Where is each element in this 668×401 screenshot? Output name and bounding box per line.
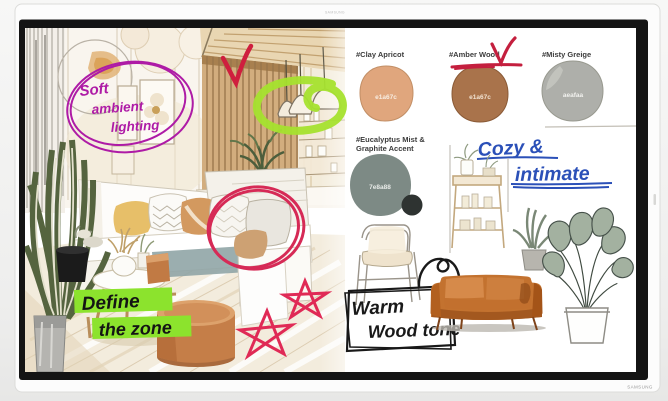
svg-text:SAMSUNG: SAMSUNG: [627, 385, 653, 390]
svg-text:Soft: Soft: [79, 80, 111, 100]
svg-text:#Clay Apricot: #Clay Apricot: [356, 50, 405, 59]
svg-text:aeafaa: aeafaa: [563, 92, 584, 99]
svg-text:Graphite Accent: Graphite Accent: [356, 144, 414, 153]
svg-text:e1a67c: e1a67c: [469, 94, 491, 101]
svg-text:intimate: intimate: [515, 163, 590, 186]
svg-text:Warm: Warm: [351, 296, 405, 320]
svg-text:the zone: the zone: [98, 317, 172, 340]
svg-text:7e8a88: 7e8a88: [369, 184, 391, 191]
svg-text:Define: Define: [81, 291, 141, 315]
svg-text:e1a67c: e1a67c: [375, 94, 397, 101]
svg-text:SAMSUNG: SAMSUNG: [325, 10, 345, 14]
svg-text:#Amber Wood: #Amber Wood: [449, 50, 500, 59]
svg-text:#Misty Greige: #Misty Greige: [542, 50, 591, 59]
svg-text:#Eucalyptus Mist &: #Eucalyptus Mist &: [356, 135, 425, 144]
svg-text:lighting: lighting: [110, 117, 160, 135]
